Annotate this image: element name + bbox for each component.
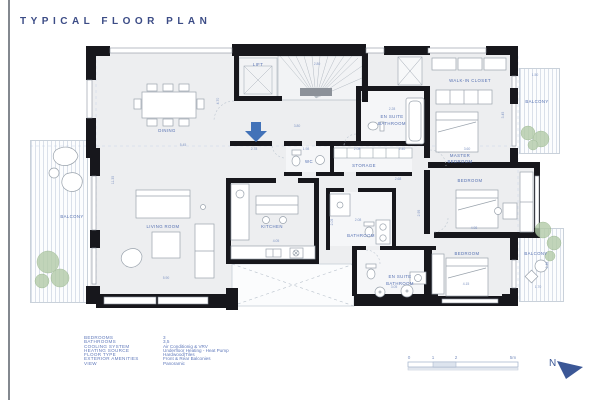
room-label-ensuite-top: BATHROOM [378,121,406,126]
dim-label: 3.45 [501,112,505,119]
room-label-bedroom-bottom: BEDROOM [454,251,479,256]
duct-shaft [398,57,422,85]
dim-label: 2.28 [389,107,396,111]
dim-label: 3.60 [464,147,471,151]
room-label-wc: WC [305,159,313,164]
room-label-ensuite-top: EN SUITE [380,114,403,119]
dim-label: 4.05 [273,239,280,243]
north-label: N [549,358,556,369]
balcony-left-furniture [49,147,82,191]
room-label-storage: STORAGE [352,163,376,168]
dim-label: 2.40 [399,147,406,151]
dim-label: 2.48 [545,262,549,269]
room-label-living: LIVING ROOM [146,224,179,229]
bedroom-bottom-furniture [432,254,488,296]
room-label-walk-in-closet: WALK-IN CLOSET [449,78,491,83]
dim-label: 2.95 [417,210,421,217]
dim-label: 2.80 [314,62,321,66]
north-arrow: N [549,358,583,379]
legend: BEDROOMS3 BATHROOMS3,5 COOLING SYSTEMAir… [84,336,229,366]
scale-tick: 2 [455,355,458,360]
room-label-balcony-top-right: BALCONY [525,99,548,104]
scale-tick: 5m [510,355,517,360]
legend-value: Panoramic [163,361,185,366]
north-arrow-icon [557,361,583,379]
balcony-bottom-right-furniture [525,260,547,283]
dim-label: 11.35 [111,176,115,184]
dim-label: 5.90 [163,276,170,280]
room-label-bedroom-mid: BEDROOM [457,178,482,183]
room-label-bathroom: BATHROOM [347,233,375,238]
dim-label: 3.80 [294,124,301,128]
legend-label: VIEW [84,362,163,366]
room-label-master: BEDROOM [447,159,472,164]
room-label-dining: DINING [158,128,176,133]
dim-label: 2.05 [330,219,334,226]
room-label-kitchen: KITCHEN [261,224,283,229]
scale-tick: 0 [408,355,411,360]
scale-tick: 1 [432,355,435,360]
room-label-balcony-bottom-right: BALCONY [524,251,547,256]
scale-bar: 0 1 2 5m [408,355,518,370]
dim-label: 1.50 [532,73,539,77]
floor-plan-page: TYPICAL FLOOR PLAN [0,0,600,400]
dim-label: 4.98 [471,226,478,230]
walls-overlay [510,88,518,104]
dim-label: 2.08 [354,147,361,151]
room-label-lift: LIFT [253,62,263,67]
dim-label: 1.70 [535,285,542,289]
room-label-master: MASTER [450,153,470,158]
dim-label: 2.08 [355,218,362,222]
legend-row: VIEWPanoramic [84,362,229,366]
dim-label: 3.05 [391,285,398,289]
room-label-ensuite-bottom: EN SUITE [388,274,411,279]
dim-label: 2.78 [251,147,258,151]
room-label-balcony-left: BALCONY [60,214,83,219]
dim-label: 1.98 [303,147,310,151]
dim-label: 4.15 [463,282,470,286]
void-terrace-area [232,264,354,306]
dim-label: 5.45 [180,143,187,147]
dim-label: 2.68 [395,177,402,181]
dim-label: 4.70 [216,98,220,105]
